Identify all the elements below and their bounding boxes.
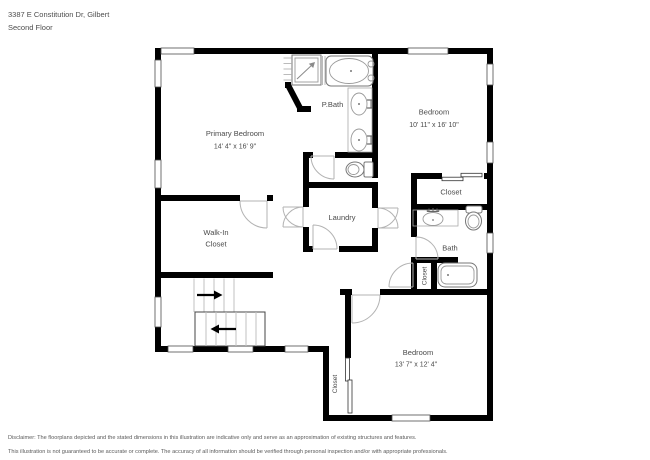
room-dimensions-bedroom-lower: 13' 7" x 12' 4" <box>395 362 438 369</box>
disclaimer: Disclaimer: The floorplans depicted and … <box>8 431 448 459</box>
window <box>155 297 161 327</box>
door-swing <box>389 263 413 287</box>
floorplan-drawing: Primary Bedroom 14' 4" x 16' 9" P.Bath B… <box>0 0 650 460</box>
bathtub <box>326 56 374 86</box>
window <box>487 64 493 85</box>
room-label-bath-closet: Closet <box>422 267 429 286</box>
room-label-primary-bedroom: Primary Bedroom <box>206 129 264 138</box>
disclaimer-line1: Disclaimer: The floorplans depicted and … <box>8 431 448 445</box>
room-label-bedroom-lower-closet: Closet <box>332 375 339 394</box>
sliding-door <box>346 358 353 413</box>
floorplan-page: 3387 E Constitution Dr, Gilbert Second F… <box>0 0 650 460</box>
door-swing <box>352 295 380 323</box>
room-label-laundry: Laundry <box>328 213 355 222</box>
door-swing <box>378 208 398 228</box>
room-label-bedroom-upper: Bedroom <box>419 108 449 117</box>
window <box>392 415 430 421</box>
room-dimensions-bedroom-upper: 10' 11" x 16' 10" <box>409 122 459 129</box>
window <box>285 346 308 352</box>
room-dimensions-primary-bedroom: 14' 4" x 16' 9" <box>214 144 257 151</box>
door-swing <box>311 156 334 179</box>
door-swing <box>313 225 337 249</box>
room-label-walk-in-closet-line1: Walk-In <box>203 228 228 237</box>
door-swing <box>283 207 303 227</box>
window <box>487 233 493 253</box>
window <box>155 160 161 188</box>
room-label-bath: Bath <box>442 244 457 253</box>
window <box>487 142 493 163</box>
double-sink-vanity <box>348 88 372 152</box>
bathtub <box>438 263 477 287</box>
toilet <box>346 162 373 177</box>
room-label-closet-upper: Closet <box>440 188 462 197</box>
room-label-p-bath: P.Bath <box>322 100 344 109</box>
staircase <box>194 279 265 347</box>
window <box>155 60 161 87</box>
toilet <box>466 206 483 230</box>
door-swing <box>416 237 438 259</box>
window <box>161 48 194 54</box>
stairs-up-arrow <box>197 291 223 300</box>
window <box>228 346 253 352</box>
shower <box>292 55 321 85</box>
door-swing <box>240 201 267 228</box>
sink-vanity <box>413 208 458 226</box>
sliding-door <box>442 173 482 180</box>
window <box>408 48 448 54</box>
disclaimer-line2: This illustration is not guaranteed to b… <box>8 445 448 459</box>
room-label-walk-in-closet-line2: Closet <box>205 240 227 249</box>
room-label-bedroom-lower: Bedroom <box>403 348 433 357</box>
window <box>168 346 193 352</box>
